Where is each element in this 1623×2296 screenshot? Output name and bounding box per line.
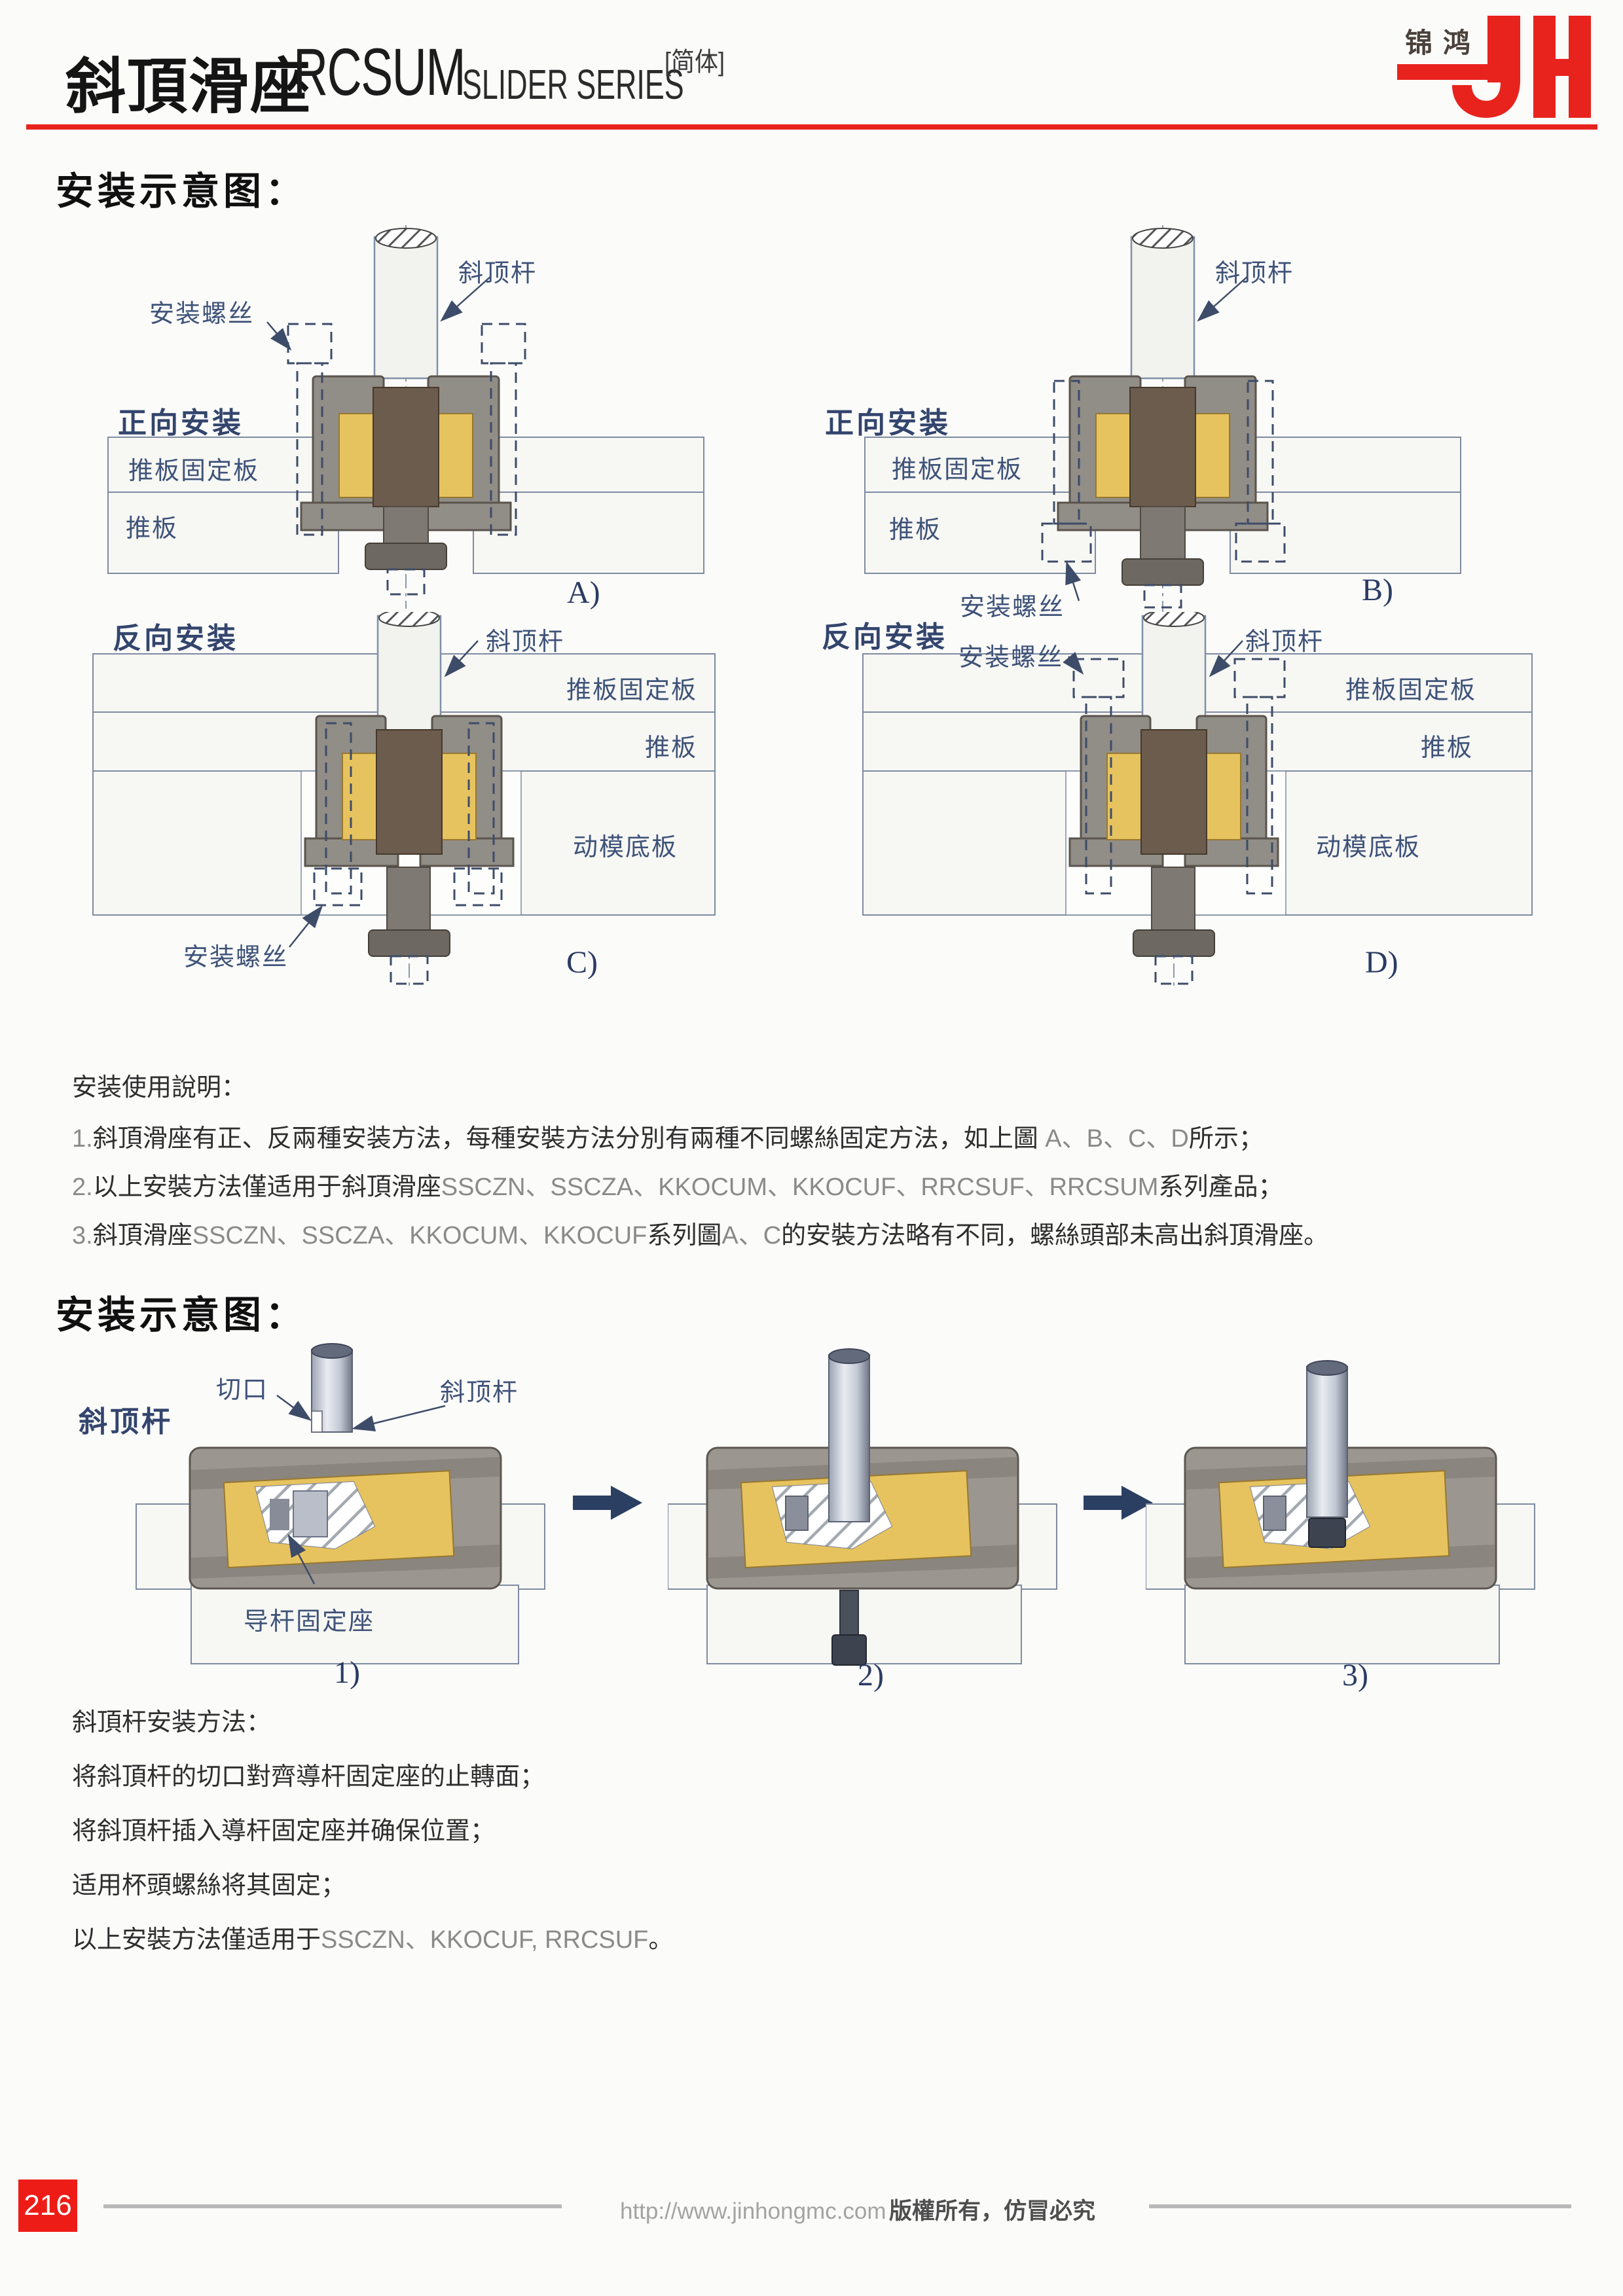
title-series-en: SLIDER SERIES <box>462 60 684 109</box>
ejector-rod-floating <box>312 1344 352 1432</box>
plate1-label: 推板固定板 <box>566 670 697 706</box>
notes2-line1: 将斜頂杆的切口對齊導杆固定座的止轉面； <box>72 1756 545 1792</box>
plate1-label: 推板固定板 <box>1345 670 1476 706</box>
logo-jh-mark <box>1395 8 1591 124</box>
notes2-line2: 将斜頂杆插入導杆固定座并确保位置； <box>72 1810 495 1846</box>
rod-socket <box>293 1491 327 1537</box>
ejector-rod <box>374 237 437 378</box>
lock-piece <box>270 1499 289 1530</box>
retaining-nut <box>365 543 447 569</box>
rod-holder-core <box>376 730 442 854</box>
line1-series: A、B、C、D <box>1045 1125 1189 1153</box>
step2-diagram: 2) <box>668 1342 1061 1698</box>
rod-section-hatch <box>376 228 436 248</box>
rod-section-hatch <box>1133 228 1193 248</box>
plate2-label: 推板 <box>126 508 178 544</box>
step-tag: 1) <box>334 1655 360 1691</box>
line4-series: SSCZN、KKOCUF, RRCSUF <box>321 1926 648 1954</box>
footer-url: http://www.jinhongmc.com <box>620 2198 886 2224</box>
side-plate-left <box>668 1504 711 1589</box>
line2-text-b: 系列產品； <box>1158 1174 1283 1201</box>
step3-drawing <box>1146 1342 1539 1698</box>
step1-diagram: 切口 斜顶杆 导杆固定座 1) <box>118 1342 550 1698</box>
rod-top <box>829 1349 869 1363</box>
section2-heading: 安装示意图： <box>56 1284 307 1339</box>
plate1-label: 推板固定板 <box>892 449 1023 485</box>
logo-j-hook <box>1452 80 1520 118</box>
line3-figures: A、C <box>721 1222 781 1249</box>
notes1-line2: 2.以上安裝方法僅适用于斜頂滑座SSCZN、SSCZA、KKOCUM、KKOCU… <box>72 1166 1283 1202</box>
lock-piece <box>786 1496 808 1530</box>
ejector-rod <box>1131 237 1194 378</box>
notes2-line3: 适用杯頭螺絲将其固定； <box>72 1865 346 1901</box>
mounting-screw-head-dashed-left <box>288 324 331 363</box>
plate2-label: 推板 <box>889 509 941 545</box>
title-chinese: 斜頂滑座 <box>65 54 312 120</box>
rod-top <box>1307 1361 1347 1375</box>
rod-label: 斜顶杆 <box>458 253 537 289</box>
logo-j-bar <box>1397 64 1487 80</box>
line3-series: SSCZN、SSCZA、KKOCUM、KKOCUF <box>192 1222 647 1249</box>
screw-label: 安装螺丝 <box>149 293 254 329</box>
orientation-label: 正向安装 <box>825 399 951 441</box>
rod-holder-core <box>373 387 439 507</box>
step-tag: 2) <box>858 1657 884 1693</box>
line4-text-a: 以上安裝方法僅适用于 <box>72 1926 321 1954</box>
lower-stem <box>1152 867 1195 930</box>
screw-label: 安装螺丝 <box>183 937 288 973</box>
cut-label: 切口 <box>216 1369 268 1405</box>
lower-stem <box>387 867 430 930</box>
line3-text-a: 斜頂滑座 <box>93 1222 192 1249</box>
retaining-nut <box>1133 930 1214 956</box>
side-plate-right <box>1013 1504 1057 1589</box>
page-number-badge: 216 <box>18 2179 77 2232</box>
line3-number: 3. <box>72 1222 93 1249</box>
line2-number: 2. <box>72 1174 93 1201</box>
rod-label: 斜顶杆 <box>1215 253 1294 289</box>
ejector-rod <box>1142 616 1205 732</box>
rod-top <box>312 1344 352 1358</box>
rod-holder-core <box>1141 730 1207 854</box>
line1-text-b: 所示； <box>1189 1125 1264 1153</box>
diagram-c: 反向安装 斜顶杆 推板固定板 推板 动模底板 安装螺丝 C) <box>85 612 733 995</box>
rod-leader-arrow <box>355 1406 445 1428</box>
notes2-line4: 以上安裝方法僅适用于SSCZN、KKOCUF, RRCSUF。 <box>72 1919 673 1955</box>
lower-stem <box>384 507 428 543</box>
logo-j-stem <box>1487 16 1520 82</box>
logo-h-cross <box>1533 59 1591 76</box>
diagram-tag: A) <box>567 575 600 611</box>
step2-drawing <box>668 1342 1061 1698</box>
line3-text-c: 的安裝方法略有不同，螺絲頭部未高出斜頂滑座。 <box>781 1222 1328 1249</box>
rod-label: 斜顶杆 <box>440 1372 519 1408</box>
line2-series: SSCZN、SSCZA、KKOCUM、KKOCUF、RRCSUF、RRCSUM <box>441 1174 1159 1201</box>
header-rule <box>26 124 1597 130</box>
step-arrow-2 <box>1084 1484 1156 1521</box>
notes2-heading: 斜頂杆安装方法： <box>72 1702 271 1738</box>
ejector-rod <box>829 1355 869 1522</box>
step3-diagram: 3) <box>1146 1342 1539 1698</box>
retaining-nut <box>369 930 450 956</box>
line3-text-b: 系列圖 <box>647 1222 721 1249</box>
side-plate-left <box>1146 1504 1189 1589</box>
ejector-rod <box>1307 1367 1347 1517</box>
diagram-a: 斜顶杆 安装螺丝 正向安装 推板固定板 推板 A) <box>92 216 720 619</box>
rod-notch-cut <box>312 1411 322 1432</box>
plate3-label: 动模底板 <box>573 827 678 863</box>
line1-text-a: 斜頂滑座有正、反兩種安装方法，每種安裝方法分別有兩種不同螺絲固定方法，如上圖 <box>93 1125 1046 1153</box>
orientation-label: 反向安装 <box>822 613 947 655</box>
side-plate-right <box>1491 1504 1535 1589</box>
title-note-wrap: [简体] <box>665 41 731 79</box>
diagram-d: 反向安装 安装螺丝 斜顶杆 推板固定板 推板 动模底板 D) <box>812 612 1545 995</box>
plate2-label: 推板 <box>1421 727 1473 763</box>
step-arrow-1 <box>573 1484 645 1521</box>
notes1-line3: 3.斜頂滑座SSCZN、SSCZA、KKOCUM、KKOCUF系列圖A、C的安裝… <box>72 1215 1328 1251</box>
page-number: 216 <box>24 2189 71 2222</box>
diagram-tag: C) <box>566 944 598 980</box>
title-series-code: RCSUM <box>293 34 465 111</box>
rod-label: 斜顶杆 <box>1245 621 1324 657</box>
diagram-tag: D) <box>1365 944 1398 980</box>
rod-section-hatch <box>1144 612 1204 626</box>
notes1-line1: 1.斜頂滑座有正、反兩種安装方法，每種安裝方法分別有兩種不同螺絲固定方法，如上圖… <box>72 1118 1264 1154</box>
rod-holder-core <box>1130 387 1195 507</box>
mounting-screw-head-dashed-right <box>482 324 525 363</box>
footer-copy-text: 版權所有，仿冒必究 <box>889 2198 1095 2224</box>
notes1-heading: 安装使用說明： <box>72 1067 246 1103</box>
ejector-retainer-plate-right <box>1230 437 1461 492</box>
line1-number: 1. <box>72 1125 93 1153</box>
footer-rule-right <box>1149 2204 1571 2208</box>
jh-logo: 锦鸿 <box>1395 8 1591 124</box>
plate3-label: 动模底板 <box>1316 827 1421 863</box>
guide-seat-plate <box>1185 1585 1499 1664</box>
rod-label: 斜顶杆 <box>486 621 564 657</box>
lower-stem <box>1140 507 1185 559</box>
ejector-rod <box>378 616 441 732</box>
orientation-label: 反向安装 <box>113 615 238 656</box>
screw-leader-arrow <box>267 322 289 348</box>
plate1-label: 推板固定板 <box>128 450 259 486</box>
guide-seat-label: 导杆固定座 <box>244 1601 374 1637</box>
title-simplified-note: [简体] <box>665 41 725 79</box>
screw-label: 安装螺丝 <box>958 637 1063 673</box>
cut-leader-arrow <box>277 1395 309 1419</box>
page-title: 斜頂滑座 <box>65 38 312 125</box>
fixing-screw-shank <box>840 1590 858 1635</box>
fixing-screw-head-seated <box>1309 1518 1345 1547</box>
diagram-tag: B) <box>1362 572 1393 608</box>
rod-section-hatch <box>379 612 439 626</box>
plate2-label: 推板 <box>645 727 697 763</box>
step-tag: 3) <box>1342 1657 1368 1693</box>
footer-rule-left <box>103 2204 562 2208</box>
orientation-label: 正向安装 <box>118 399 244 441</box>
footer-copyright: http://www.jinhongmc.com 版權所有，仿冒必究 <box>609 2193 1106 2226</box>
diagram-b: 斜顶杆 正向安装 推板固定板 推板 安装螺丝 B) <box>812 216 1506 625</box>
ejector-retainer-plate-right <box>473 437 704 492</box>
retaining-nut <box>1122 559 1203 585</box>
side-plate-left <box>136 1504 194 1589</box>
lock-piece <box>1264 1496 1286 1530</box>
line4-text-b: 。 <box>648 1926 673 1954</box>
line2-text-a: 以上安裝方法僅适用于斜頂滑座 <box>93 1174 441 1201</box>
section1-heading: 安装示意图： <box>56 160 307 215</box>
